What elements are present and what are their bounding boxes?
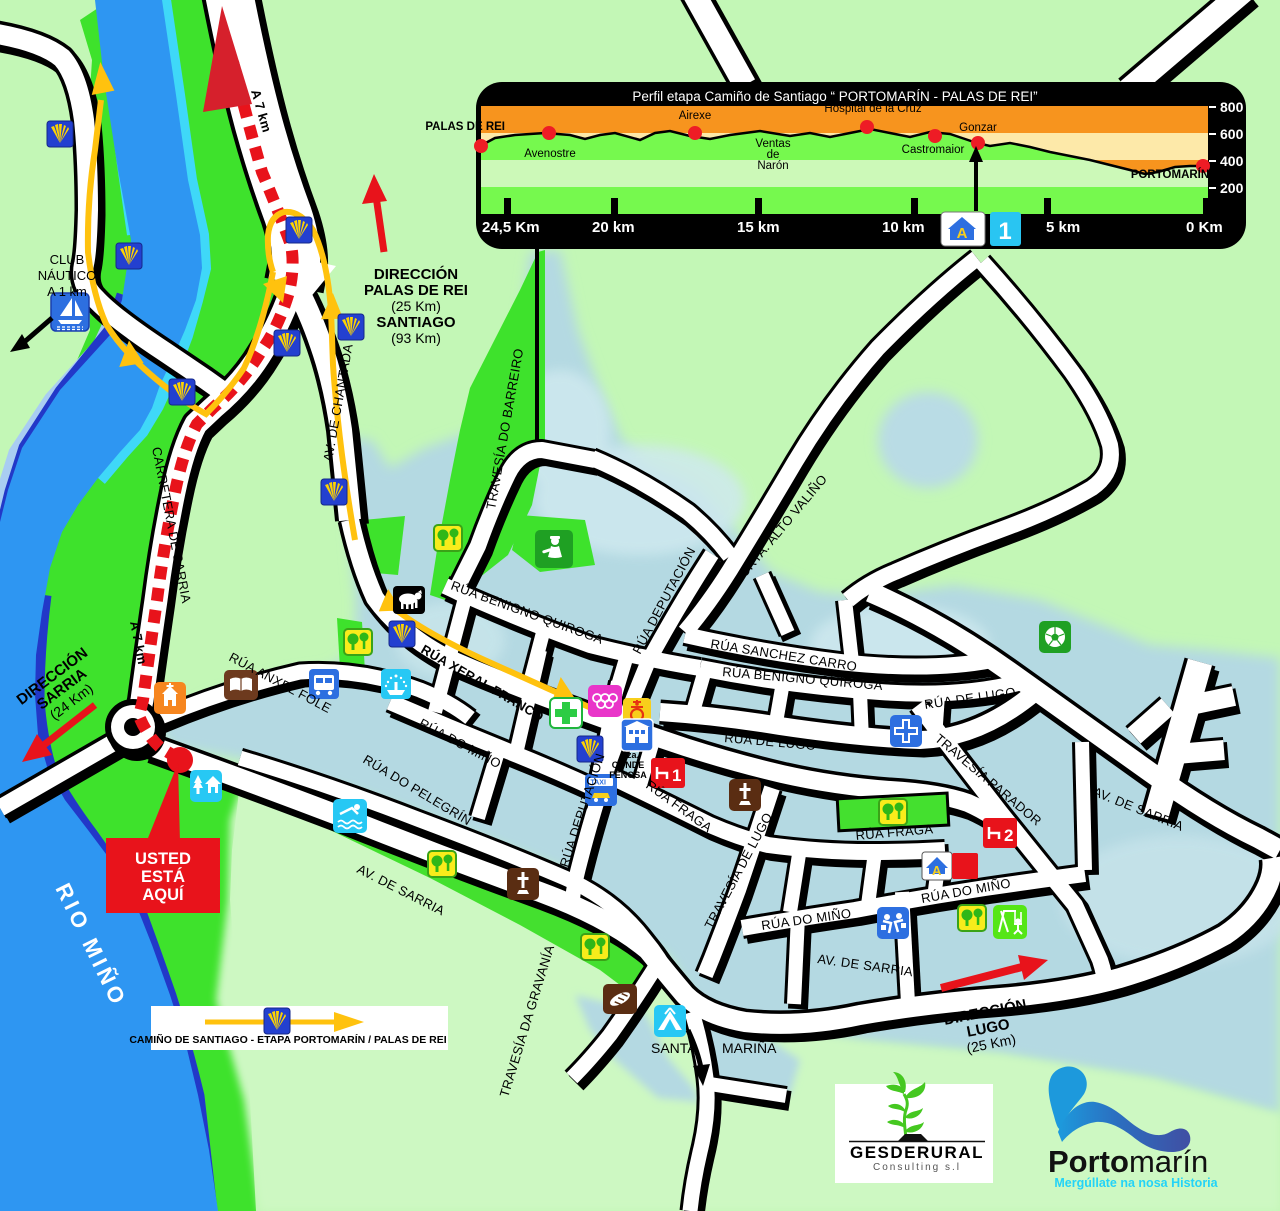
- svg-text:10 km: 10 km: [882, 219, 925, 236]
- svg-text:A 1 km: A 1 km: [47, 284, 87, 299]
- svg-text:Hospital de la Cruz: Hospital de la Cruz: [824, 103, 921, 115]
- svg-text:Consulting s.l: Consulting s.l: [873, 1162, 961, 1173]
- svg-text:SANTIAGO: SANTIAGO: [376, 314, 456, 331]
- svg-text:800: 800: [1220, 99, 1244, 115]
- svg-text:USTED: USTED: [135, 850, 191, 868]
- svg-text:2: 2: [1004, 826, 1013, 845]
- svg-text:600: 600: [1220, 126, 1244, 142]
- svg-text:24,5 Km: 24,5 Km: [482, 219, 540, 236]
- svg-text:200: 200: [1220, 180, 1244, 196]
- svg-text:DIRECCIÓN: DIRECCIÓN: [374, 265, 458, 283]
- svg-text:1: 1: [672, 766, 681, 785]
- svg-text:MARIÑA: MARIÑA: [722, 1040, 777, 1056]
- svg-text:1: 1: [998, 218, 1011, 245]
- svg-text:A: A: [932, 863, 942, 878]
- svg-text:15 km: 15 km: [737, 219, 780, 236]
- svg-text:PALAS DE REI: PALAS DE REI: [364, 282, 468, 299]
- svg-text:400: 400: [1220, 153, 1244, 169]
- svg-text:FENOSA: FENOSA: [609, 770, 647, 780]
- svg-text:(93 Km): (93 Km): [391, 330, 441, 346]
- svg-text:GESDERURAL: GESDERURAL: [850, 1143, 984, 1162]
- svg-text:Gonzar: Gonzar: [959, 122, 997, 134]
- svg-text:0 Km: 0 Km: [1186, 219, 1223, 236]
- svg-text:A: A: [957, 225, 968, 242]
- svg-text:PORTOMARÍN: PORTOMARÍN: [1131, 168, 1209, 181]
- svg-text:NÁUTICO: NÁUTICO: [38, 268, 97, 283]
- svg-text:(25 Km): (25 Km): [391, 298, 441, 314]
- svg-text:Pza.: Pza.: [621, 750, 639, 760]
- svg-text:SANTA: SANTA: [651, 1040, 697, 1056]
- svg-text:Portomarín: Portomarín: [1048, 1144, 1208, 1179]
- svg-text:Avenostre: Avenostre: [524, 148, 576, 160]
- svg-text:Perfil etapa Camiño de Santiag: Perfil etapa Camiño de Santiago “ PORTOM…: [632, 89, 1037, 104]
- svg-text:20 km: 20 km: [592, 219, 635, 236]
- svg-text:Airexe: Airexe: [679, 110, 712, 122]
- svg-text:PALAS DE REI: PALAS DE REI: [425, 121, 505, 133]
- svg-text:5 km: 5 km: [1046, 219, 1080, 236]
- svg-text:CONDE: CONDE: [612, 760, 645, 770]
- svg-text:Mergúllate na nosa Historia: Mergúllate na nosa Historia: [1054, 1176, 1218, 1190]
- svg-text:CLUB: CLUB: [50, 252, 85, 267]
- svg-text:CAMIÑO DE SANTIAGO - ETAPA P: CAMIÑO DE SANTIAGO - ETAPA PORTOMARÍN / …: [129, 1033, 446, 1046]
- svg-text:Castromaior: Castromaior: [902, 144, 965, 156]
- svg-text:ESTÁ: ESTÁ: [141, 867, 185, 886]
- svg-text:AQUÍ: AQUÍ: [142, 885, 184, 904]
- svg-text:Narón: Narón: [757, 160, 788, 172]
